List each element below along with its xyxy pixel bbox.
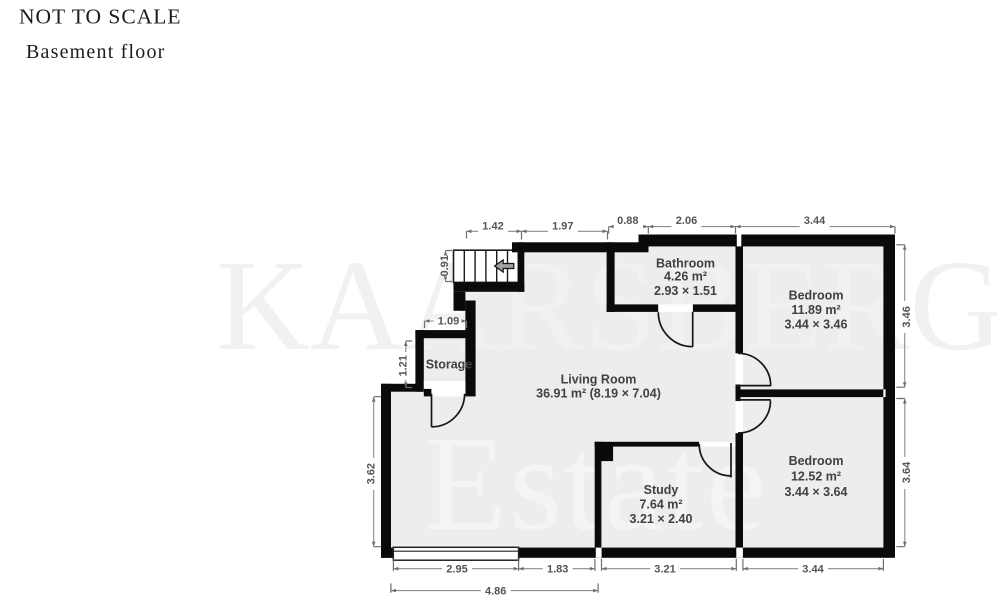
svg-text:4.26 m²: 4.26 m² [664, 270, 707, 284]
svg-text:Bedroom: Bedroom [789, 454, 844, 468]
svg-text:2.93 × 1.51: 2.93 × 1.51 [654, 284, 717, 298]
svg-text:Study: Study [644, 483, 679, 497]
svg-text:0.91: 0.91 [439, 255, 451, 276]
svg-text:3.64: 3.64 [901, 461, 913, 483]
svg-text:Storage: Storage [426, 358, 473, 372]
svg-text:3.46: 3.46 [901, 306, 913, 327]
svg-text:1.09: 1.09 [438, 315, 459, 327]
svg-text:3.62: 3.62 [365, 463, 377, 484]
svg-text:2.06: 2.06 [676, 215, 697, 227]
svg-text:1.83: 1.83 [547, 564, 568, 576]
svg-text:7.64 m²: 7.64 m² [639, 497, 682, 511]
svg-text:3.44 × 3.64: 3.44 × 3.64 [785, 485, 848, 499]
svg-text:36.91 m² (8.19 × 7.04): 36.91 m² (8.19 × 7.04) [536, 387, 661, 401]
svg-text:1.21: 1.21 [398, 355, 410, 376]
svg-text:0.88: 0.88 [617, 215, 638, 227]
svg-text:1.42: 1.42 [482, 221, 503, 233]
svg-text:3.44: 3.44 [804, 215, 826, 227]
svg-text:1.97: 1.97 [552, 221, 573, 233]
svg-text:Living Room: Living Room [561, 372, 637, 386]
svg-text:4.86: 4.86 [485, 586, 506, 598]
svg-text:3.44 × 3.46: 3.44 × 3.46 [785, 318, 848, 332]
svg-text:NOT TO SCALE: NOT TO SCALE [19, 5, 182, 29]
svg-text:12.52 m²: 12.52 m² [791, 470, 841, 484]
svg-text:Bathroom: Bathroom [656, 256, 715, 270]
svg-text:3.44: 3.44 [802, 564, 824, 576]
svg-text:3.21: 3.21 [654, 564, 675, 576]
svg-text:3.21 × 2.40: 3.21 × 2.40 [630, 512, 693, 526]
svg-text:2.95: 2.95 [446, 564, 467, 576]
svg-text:Bedroom: Bedroom [789, 289, 844, 303]
svg-text:KAARSBERG: KAARSBERG [216, 234, 997, 378]
svg-text:11.89 m²: 11.89 m² [791, 303, 840, 317]
svg-text:Basement floor: Basement floor [26, 41, 166, 63]
